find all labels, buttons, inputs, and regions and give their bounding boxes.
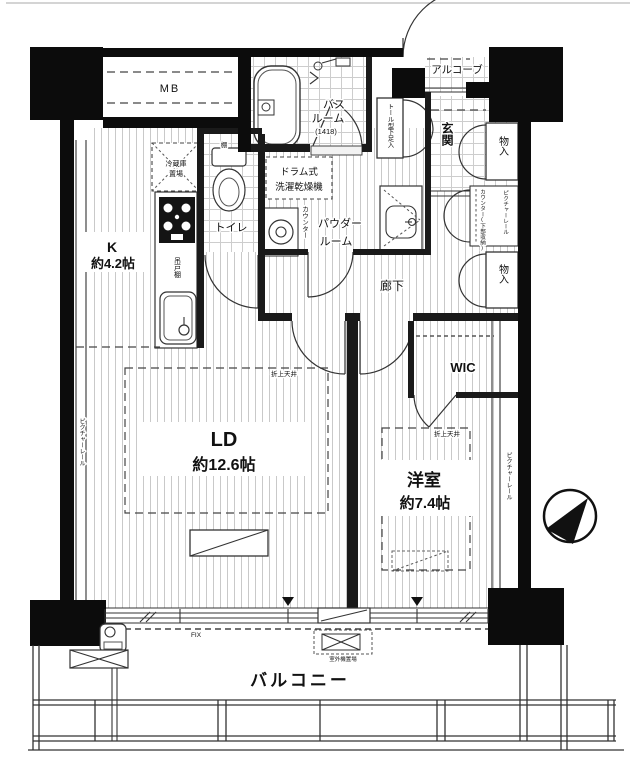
fridge-label-1: 冷蔵庫 — [166, 159, 187, 168]
laundry-machine-label-2: 洗濯乾燥機 — [275, 181, 323, 193]
living-name-label: LD — [211, 429, 238, 451]
kitchen-area-label: 約4.2帖 — [91, 256, 135, 271]
pillar-bottom-right — [488, 588, 564, 645]
pillar-bottom-left — [30, 600, 106, 646]
bath-size-label: (1418) — [315, 127, 337, 136]
powder-label-2: ルーム — [320, 235, 353, 248]
washing-machine-icon — [264, 208, 298, 256]
fridge-label-2: 置場 — [169, 169, 183, 178]
bedroom-area-label: 約7.4帖 — [400, 494, 451, 512]
toilet-icon — [212, 148, 246, 211]
kitchen-name-label: K — [107, 239, 117, 255]
floorplan-page: MB バス ルーム (1418) アルコーブ トール型下足入 玄関 物入 カウン… — [0, 0, 636, 762]
living-counter — [190, 530, 268, 556]
pillar-top-left — [30, 47, 103, 120]
shoe-cabinet-label: トール型下足入 — [387, 103, 394, 148]
counter-storage-label: カウンター(下部収納) — [479, 189, 486, 251]
balcony-faucet-icon — [100, 624, 126, 652]
picture-rail-top-label: ピクチャーレール — [502, 190, 509, 235]
floorplan-svg: MB バス ルーム (1418) アルコーブ トール型下足入 玄関 物入 カウン… — [0, 0, 636, 762]
living-area-label: 約12.6帖 — [192, 455, 255, 474]
living-ceiling-label: 折上天井 — [271, 369, 298, 378]
wic-label: WIC — [450, 360, 476, 375]
picture-rail-right-label: ピクチャーレール — [505, 452, 512, 500]
outdoor-unit-label: 室外機置場 — [329, 655, 357, 663]
bath-door-sill — [311, 146, 362, 155]
storage-top-label: 物入 — [497, 135, 509, 156]
alcove-label: アルコーブ — [431, 63, 483, 76]
sink-icon — [160, 292, 196, 344]
entrance-label: 玄関 — [440, 121, 454, 147]
storage-bottom-label: 物入 — [497, 263, 509, 284]
vanity-sink-icon — [380, 186, 422, 250]
fix-window-label: FIX — [191, 632, 202, 639]
pillar-top-right — [489, 47, 563, 122]
bath-label-2: ルーム — [312, 112, 345, 125]
toilet-shelf-label: 棚 — [221, 140, 228, 149]
bedroom-ceiling-label: 折上天井 — [434, 429, 461, 438]
stove-icon — [159, 197, 195, 243]
bath-label-1: バス — [323, 98, 345, 111]
cupboard-label: 吊戸棚 — [174, 257, 182, 279]
bedroom-name-label: 洋室 — [407, 470, 441, 490]
outdoor-unit-space — [314, 630, 372, 654]
balcony-drain-box — [70, 650, 128, 668]
mb-label: MB — [160, 83, 181, 95]
corridor-label: 廊下 — [380, 278, 404, 293]
toilet-label: トイレ — [215, 222, 248, 234]
compass-icon — [544, 490, 596, 544]
picture-rail-left-label: ピクチャーレール — [78, 418, 85, 466]
counter-storage-box — [470, 186, 518, 246]
laundry-machine-label-1: ドラム式 — [280, 166, 318, 178]
balcony-label: バルコニー — [250, 671, 350, 690]
powder-label-1: パウダー — [318, 216, 362, 230]
